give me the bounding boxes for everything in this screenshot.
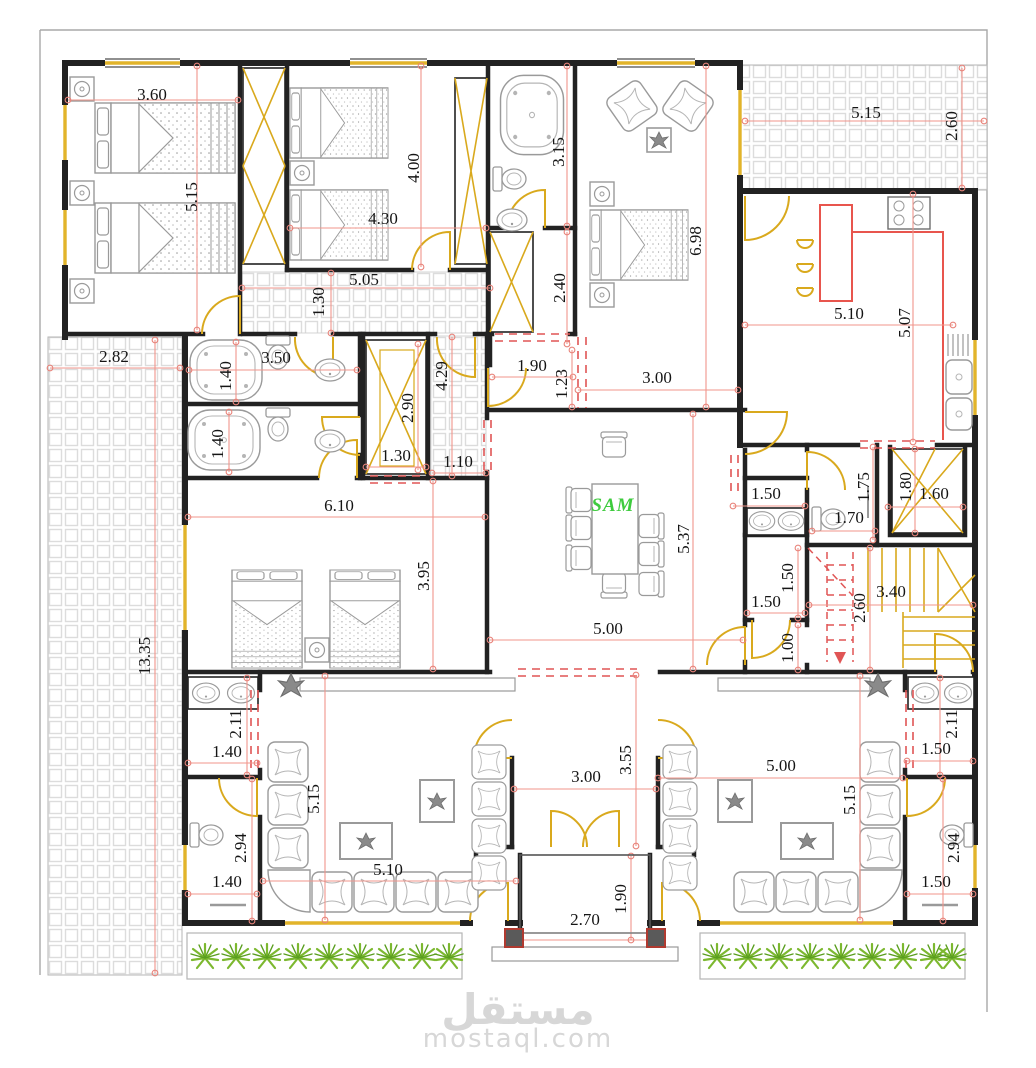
bed-icon xyxy=(330,570,400,668)
bed-icon xyxy=(290,190,388,260)
door-bedroom2 xyxy=(412,232,450,270)
door-kitchen xyxy=(745,196,789,240)
kitchen-island xyxy=(820,205,852,301)
floor-plan-drawing xyxy=(0,0,1036,1068)
furniture xyxy=(70,75,974,912)
door-lobby xyxy=(752,620,790,658)
stairs-arrow xyxy=(834,652,846,664)
door-bath-bottom-left xyxy=(219,778,257,816)
column-icon xyxy=(505,929,523,947)
kitchen-sink-icon xyxy=(946,334,972,430)
toilet-icon xyxy=(266,408,290,441)
nightstand-icon xyxy=(70,279,94,303)
door-dining-upper xyxy=(745,412,787,454)
toilet-icon xyxy=(266,336,290,369)
side-table-icon xyxy=(647,128,671,152)
sink-icon xyxy=(497,209,527,231)
bathtub-icon xyxy=(188,410,260,470)
corridor-tiles xyxy=(242,272,488,333)
toilet-icon xyxy=(940,823,973,847)
door-stairs xyxy=(935,634,973,672)
bar-stool-icon xyxy=(797,240,813,296)
tv-console xyxy=(300,678,515,691)
door-dining-lower xyxy=(707,627,745,665)
nightstand-icon xyxy=(305,638,329,662)
bed-icon xyxy=(95,203,235,273)
left-yard-tiles xyxy=(48,337,182,975)
stairs xyxy=(808,548,975,668)
bed-icon xyxy=(232,570,302,668)
tv-console xyxy=(718,678,870,691)
nightstand-icon xyxy=(70,77,94,101)
entrance-double-door-left xyxy=(551,811,587,847)
nightstand-icon xyxy=(290,161,314,185)
terrace-tiles xyxy=(742,65,987,190)
armchair-icon xyxy=(660,78,716,134)
kitchen-counter xyxy=(852,232,943,440)
toilet-icon xyxy=(190,823,223,847)
dining-table xyxy=(566,432,664,598)
door-bath-bottom-right xyxy=(907,778,945,816)
door-wc xyxy=(807,452,845,490)
kitchen xyxy=(797,197,972,440)
column-icon xyxy=(647,929,665,947)
door-bedroom1 xyxy=(202,296,240,334)
floor-plan-canvas: 3.605.154.304.005.051.303.152.406.983.00… xyxy=(0,0,1036,1068)
vanity-counter xyxy=(747,508,805,535)
rug-frame xyxy=(420,780,454,822)
plant-decor-icon xyxy=(278,674,303,696)
sink-icon xyxy=(315,430,345,452)
rug-frame xyxy=(340,823,392,859)
door-hall-yard xyxy=(488,368,526,406)
nightstand-icon xyxy=(590,283,614,307)
bed-icon xyxy=(590,210,688,280)
bed-icon xyxy=(290,88,388,158)
rug-frame xyxy=(718,780,752,822)
hall-tiles xyxy=(431,336,486,477)
stove-icon xyxy=(888,197,930,229)
toilet-icon xyxy=(812,507,845,531)
nightstand-icon xyxy=(590,182,614,206)
watermark-latin: mostaql.com xyxy=(423,1024,613,1054)
vanity-counter xyxy=(908,677,974,709)
armchair-icon xyxy=(604,78,660,134)
walls xyxy=(65,63,975,933)
toilet-icon xyxy=(493,167,526,191)
bed-icon xyxy=(95,103,235,173)
entrance-porch xyxy=(492,855,678,961)
bathtub-icon xyxy=(501,75,564,154)
entrance-double-door-right xyxy=(583,811,619,847)
nightstand-icon xyxy=(70,181,94,205)
rug-frame xyxy=(781,823,833,859)
plant-decor-icon xyxy=(865,674,890,696)
